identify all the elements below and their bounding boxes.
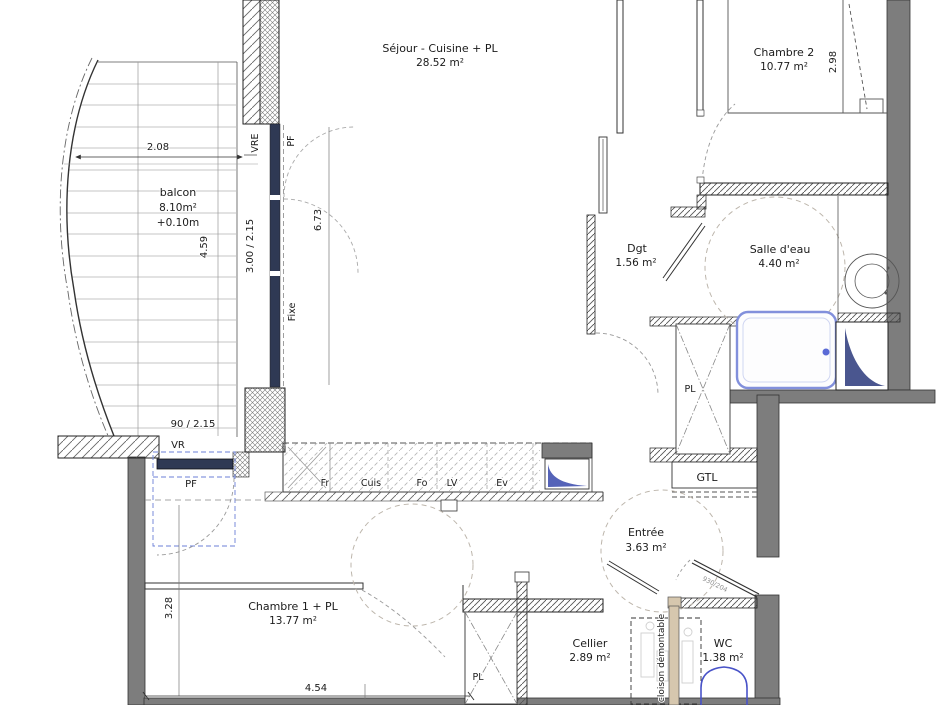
chambre2-left-wall — [697, 0, 703, 116]
shower-tray — [737, 312, 836, 388]
dim-chambre2-depth: 2.98 — [828, 51, 839, 73]
top-left-wall-inner — [260, 0, 279, 124]
balcony-border — [98, 62, 237, 437]
door-jamb — [697, 177, 704, 183]
thin-walls — [145, 0, 703, 599]
wc-label: WC — [714, 637, 733, 650]
chambre1-cellier-wall — [517, 574, 527, 705]
dim-pf-window: 90 / 2.15 — [171, 419, 216, 430]
fixe-label: Fixe — [287, 303, 298, 322]
cloison-label: cloison démontable — [656, 613, 667, 702]
fridge-label: Fr — [321, 478, 330, 489]
hall-post — [515, 572, 529, 582]
dim-balcon-height: 4.59 — [199, 236, 210, 258]
sejour-corner-wall — [245, 388, 285, 452]
chambre2-label: Chambre 2 — [754, 46, 815, 59]
left-wall — [128, 457, 145, 705]
floor-transition-strip — [265, 492, 603, 501]
entree-area: 3.63 m² — [625, 542, 666, 554]
pipe-box — [441, 500, 457, 511]
bay-window-joint — [270, 271, 280, 276]
balcony — [60, 58, 258, 438]
door-jamb — [697, 110, 704, 116]
chambre2-bath-wall — [700, 183, 888, 195]
bathroom — [672, 196, 899, 497]
bed-fold-line — [849, 4, 867, 109]
sink-label: Ev — [496, 478, 508, 489]
dgt-left-wall — [587, 215, 595, 334]
dim-bay-window: 3.00 / 2.15 — [245, 219, 256, 273]
pf-jamb-wall — [233, 452, 249, 477]
chambre1-door-swing — [362, 590, 445, 657]
chambre1-label: Chambre 1 + PL — [248, 600, 338, 613]
pf-window — [157, 459, 233, 469]
pl-bath-label: PL — [684, 384, 696, 395]
dim-window-height: 6.73 — [313, 209, 324, 231]
cellier-door-leaf — [607, 561, 659, 594]
balcony-slab — [58, 436, 159, 458]
balcony-curved-edge — [67, 60, 114, 436]
dgt-door-swing — [596, 333, 658, 395]
washbasin-inner — [855, 264, 889, 298]
demountable-partition — [669, 606, 679, 705]
kitchen-hood — [542, 443, 592, 458]
cellier-top-wall — [463, 599, 603, 612]
floor-plan-canvas: Séjour - Cuisine + PL 28.52 m² Chambre 2… — [0, 0, 940, 705]
sejour-label: Séjour - Cuisine + PL — [382, 42, 498, 55]
nightstand — [860, 99, 883, 113]
ghost-fixtures — [641, 622, 693, 683]
entree-label: Entrée — [628, 526, 664, 539]
balcon-area: 8.10m² — [159, 202, 197, 214]
chambre2-area: 10.77 m² — [760, 61, 808, 73]
pl-bedroom-label: PL — [472, 672, 484, 683]
pf-small-label: PF — [185, 479, 197, 490]
entry-door-ref: 930/204 — [701, 575, 729, 594]
shower-drain — [823, 349, 830, 356]
gtl-label: GTL — [697, 471, 719, 484]
dgt-step-wall — [671, 207, 705, 217]
chambre1-area: 13.77 m² — [269, 615, 317, 627]
salle-eau-label: Salle d'eau — [750, 243, 811, 256]
pf-bay-label: PF — [286, 135, 297, 146]
dgt-label: Dgt — [627, 242, 647, 255]
right-wall — [887, 0, 910, 390]
bath-door-leaf — [663, 223, 705, 281]
chambre2-door-swing — [702, 104, 735, 181]
balcon-label: balcon — [160, 186, 197, 199]
right-lower-wall-upper — [757, 395, 779, 557]
bay-window — [270, 124, 280, 387]
hall-entree — [351, 490, 759, 657]
turning-circle-hall — [351, 504, 473, 626]
cooktop-label: Cuis — [361, 478, 381, 489]
sejour-dgt-wall — [617, 0, 623, 133]
floor-plan: Séjour - Cuisine + PL 28.52 m² Chambre 2… — [0, 0, 940, 705]
dim-chambre1-width: 4.54 — [305, 683, 327, 694]
vr-label: VR — [171, 440, 185, 451]
entree-wc-wall — [681, 598, 757, 608]
oven-label: Fo — [417, 478, 428, 489]
top-left-wall-outer — [243, 0, 260, 124]
basin-tap-dot — [885, 292, 888, 295]
cellier-area: 2.89 m² — [569, 652, 610, 664]
dim-balcon-width: 2.08 — [147, 142, 169, 153]
entry-door-swing — [676, 560, 690, 580]
basin-tap-dot — [887, 267, 890, 270]
wc-area: 1.38 m² — [702, 652, 743, 664]
balcony-property-line — [60, 58, 109, 438]
chambre1-top-wall — [145, 583, 363, 589]
bay-window-joint — [270, 195, 280, 200]
right-lower-wall-lower — [755, 595, 779, 705]
sejour-area: 28.52 m² — [416, 57, 464, 69]
basin-duct-wall — [838, 313, 900, 322]
dim-chambre1-depth: 3.28 — [164, 597, 175, 619]
balcon-offset: +0.10m — [157, 217, 199, 229]
dishwasher-label: LV — [447, 478, 458, 489]
cellier-label: Cellier — [573, 637, 608, 650]
dgt-area: 1.56 m² — [615, 257, 656, 269]
salle-eau-area: 4.40 m² — [758, 258, 799, 270]
vre-label: VRE — [250, 133, 261, 152]
